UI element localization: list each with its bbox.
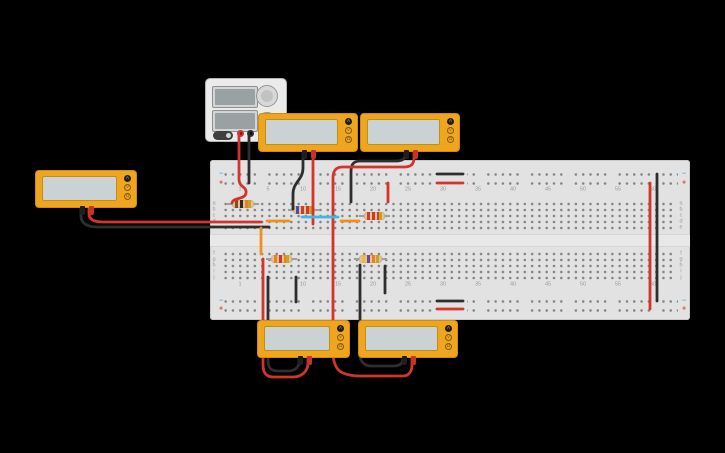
multimeter-screen (42, 176, 117, 201)
wires-layer (0, 0, 725, 453)
wire-mm-top-2-black-probe[interactable] (351, 152, 405, 202)
multimeter-bottom-2[interactable]: AVΩ (358, 320, 458, 358)
multimeter-top-1[interactable]: AVΩ (258, 113, 358, 152)
probe-black[interactable] (298, 356, 303, 365)
mode-button-V[interactable]: V (345, 127, 352, 134)
mode-button-A[interactable]: A (445, 325, 452, 332)
multimeter-screen (265, 119, 338, 145)
probe-red[interactable] (89, 206, 94, 215)
mode-button-V[interactable]: V (445, 334, 452, 341)
mode-button-A[interactable]: A (337, 325, 344, 332)
probe-black[interactable] (404, 150, 409, 159)
probe-red[interactable] (311, 150, 316, 159)
probe-red[interactable] (411, 356, 416, 365)
multimeter-top-2[interactable]: AVΩ (360, 113, 460, 152)
mode-button-V[interactable]: V (337, 334, 344, 341)
multimeter-bottom-1[interactable]: AVΩ (257, 320, 350, 358)
multimeter-left[interactable]: AVΩ (35, 170, 137, 208)
probe-red[interactable] (307, 356, 312, 365)
multimeter-screen (365, 326, 438, 351)
wire-mm-left-red-probe[interactable] (89, 208, 261, 222)
mode-button-V[interactable]: V (447, 127, 454, 134)
mode-button-Ω[interactable]: Ω (337, 343, 344, 350)
mode-button-Ω[interactable]: Ω (124, 193, 131, 200)
circuit-canvas[interactable]: 1155101015152020252530303535404045455050… (0, 0, 725, 453)
multimeter-screen (367, 119, 440, 145)
probe-black[interactable] (402, 356, 407, 365)
wire-mm-top-1-black-probe[interactable] (293, 152, 303, 209)
mode-button-Ω[interactable]: Ω (445, 343, 452, 350)
mode-button-V[interactable]: V (124, 184, 131, 191)
mode-button-A[interactable]: A (124, 175, 131, 182)
mode-button-Ω[interactable]: Ω (345, 136, 352, 143)
probe-red[interactable] (413, 150, 418, 159)
probe-black[interactable] (302, 150, 307, 159)
wire-mm-left-black-probe[interactable] (81, 208, 269, 227)
mode-button-A[interactable]: A (345, 118, 352, 125)
mode-button-A[interactable]: A (447, 118, 454, 125)
probe-black[interactable] (80, 206, 85, 215)
multimeter-screen (264, 326, 330, 351)
mode-button-Ω[interactable]: Ω (447, 136, 454, 143)
wire-psu-positive[interactable] (232, 132, 246, 203)
